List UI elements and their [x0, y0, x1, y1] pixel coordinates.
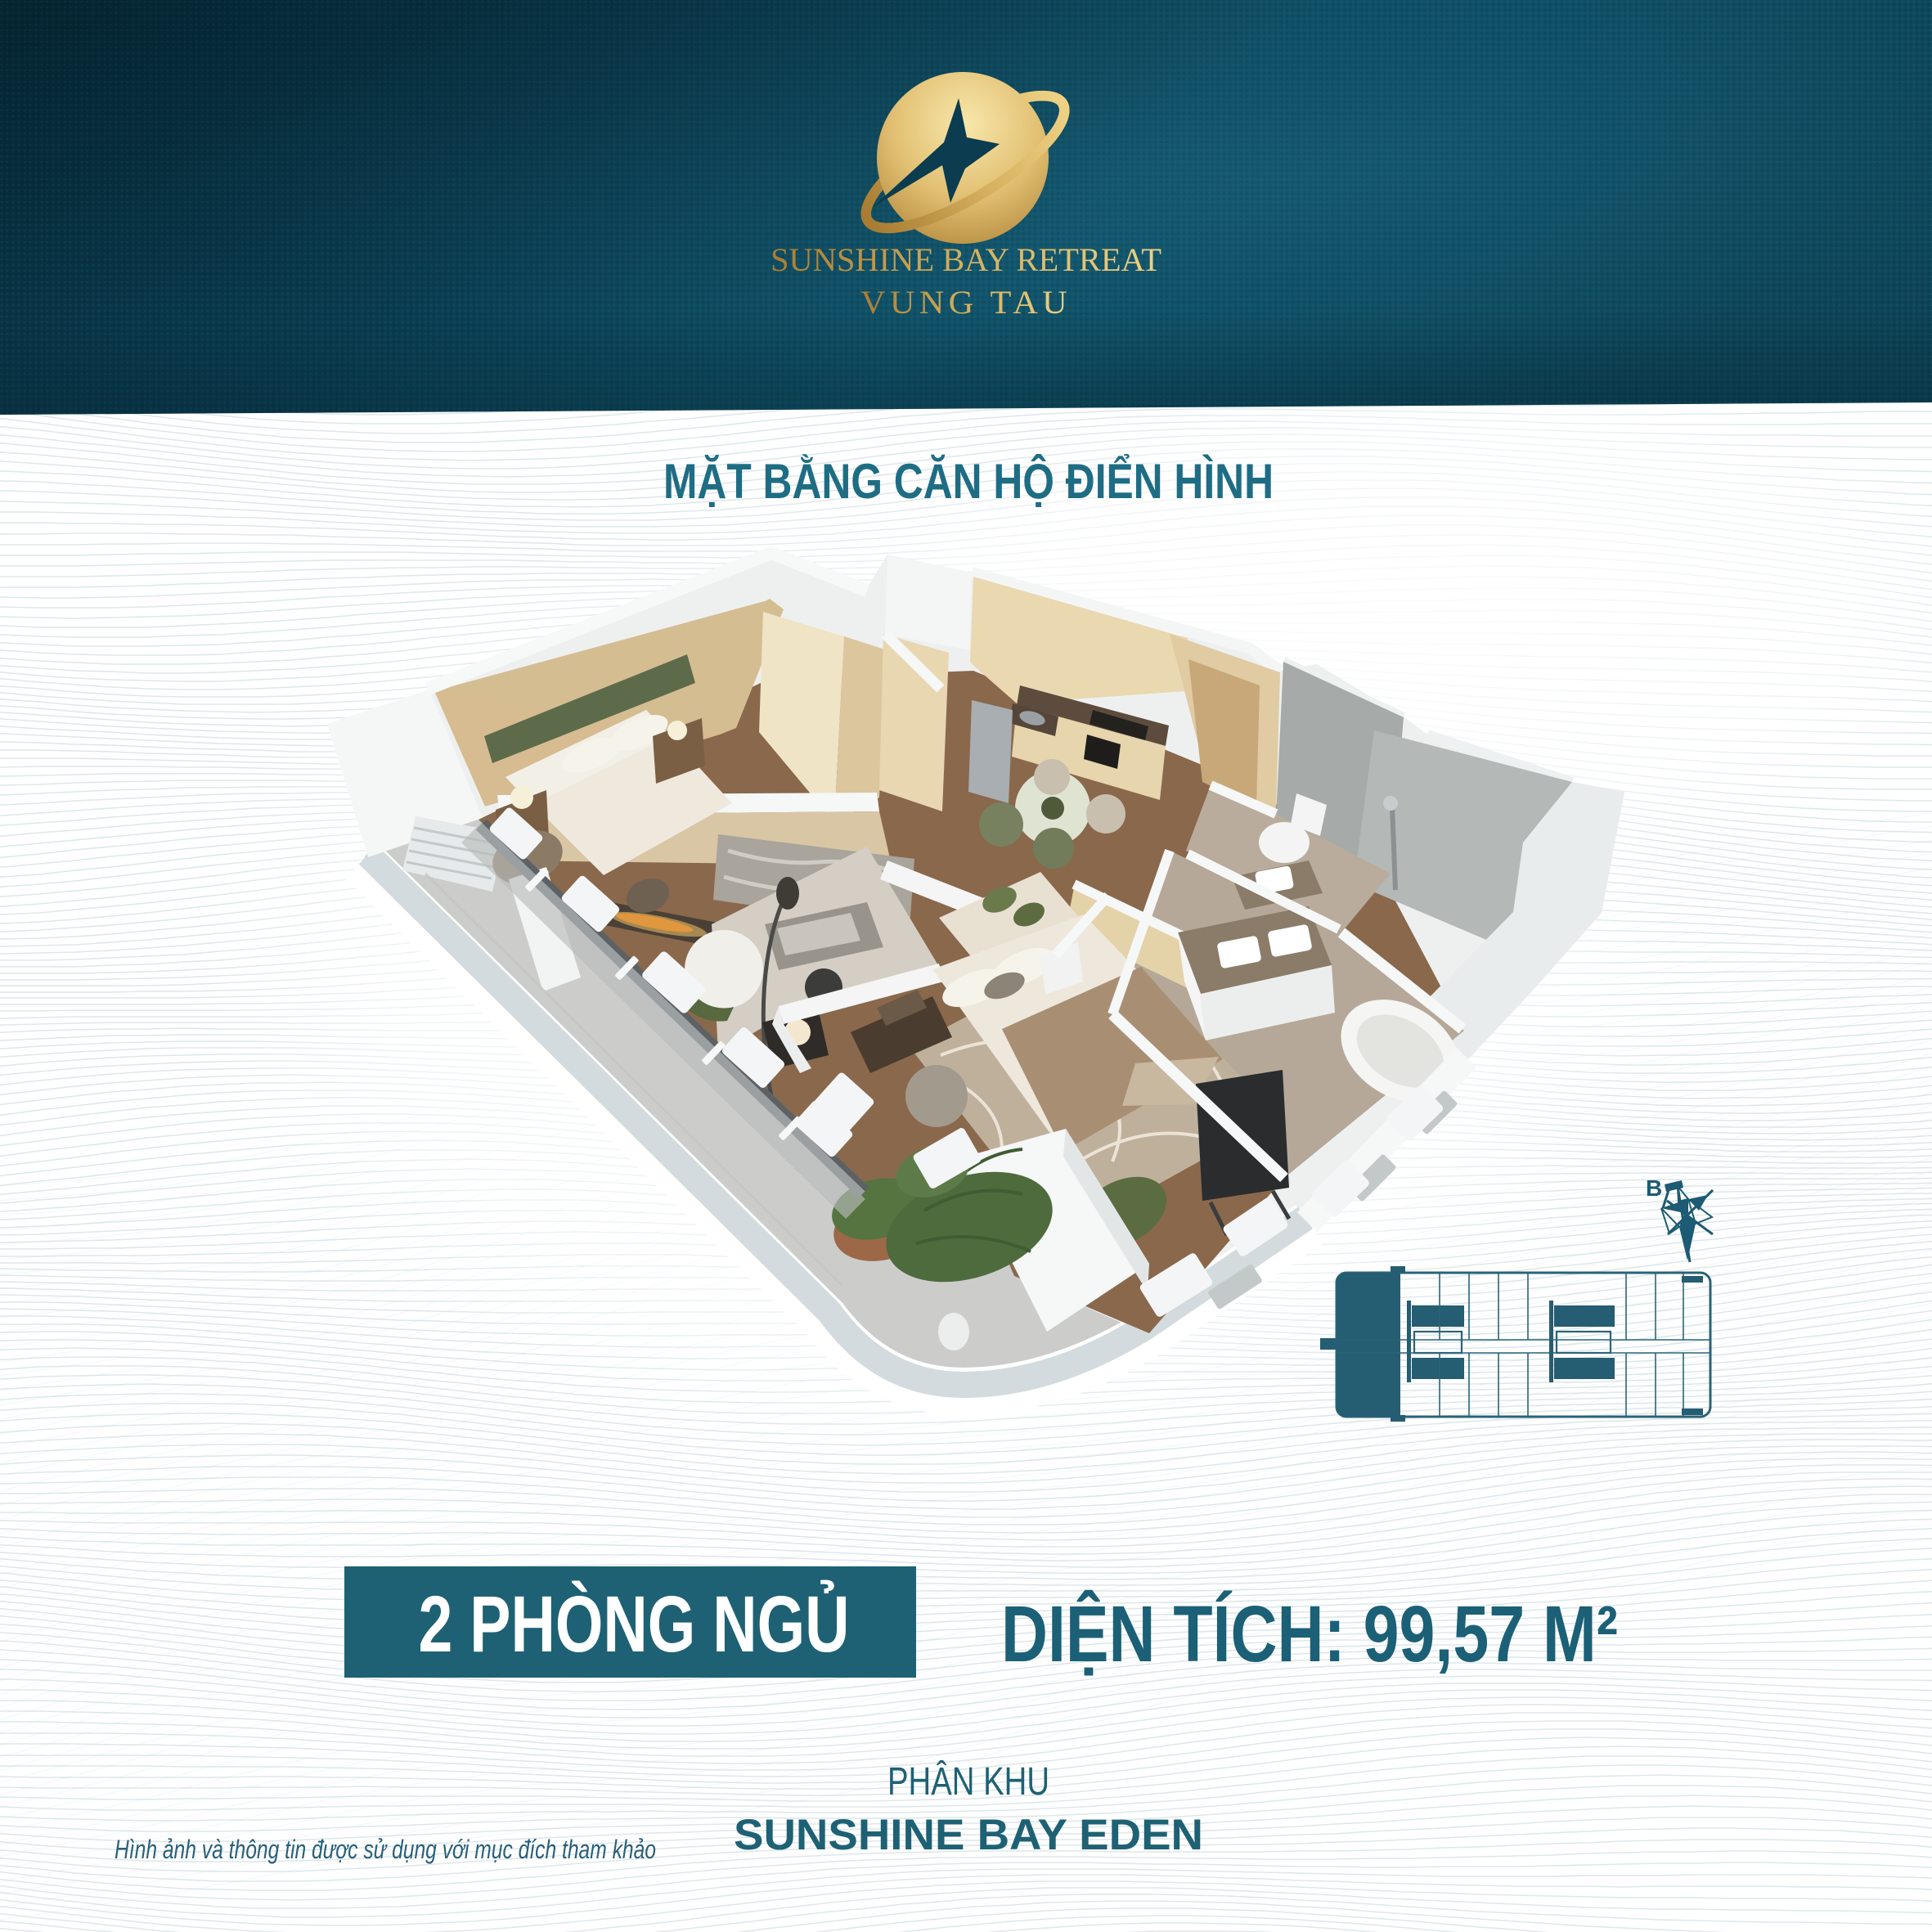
svg-text:Hình ảnh và thông tin được sử: Hình ảnh và thông tin được sử dụng với m… [115, 1835, 656, 1864]
svg-text:MẶT BẰNG CĂN HỘ ĐIỂN HÌNH: MẶT BẰNG CĂN HỘ ĐIỂN HÌNH [663, 454, 1274, 509]
svg-text:PHÂN KHU: PHÂN KHU [887, 1760, 1049, 1804]
svg-text:B: B [1646, 1175, 1662, 1201]
svg-text:SUNSHINE BAY RETREAT: SUNSHINE BAY RETREAT [771, 241, 1161, 278]
svg-text:SUNSHINE BAY EDEN: SUNSHINE BAY EDEN [734, 1811, 1203, 1859]
svg-text:VUNG TAU: VUNG TAU [860, 284, 1072, 321]
svg-text:DIỆN TÍCH: 99,57 M²: DIỆN TÍCH: 99,57 M² [1001, 1589, 1618, 1678]
svg-text:2 PHÒNG NGỦ: 2 PHÒNG NGỦ [419, 1579, 850, 1669]
